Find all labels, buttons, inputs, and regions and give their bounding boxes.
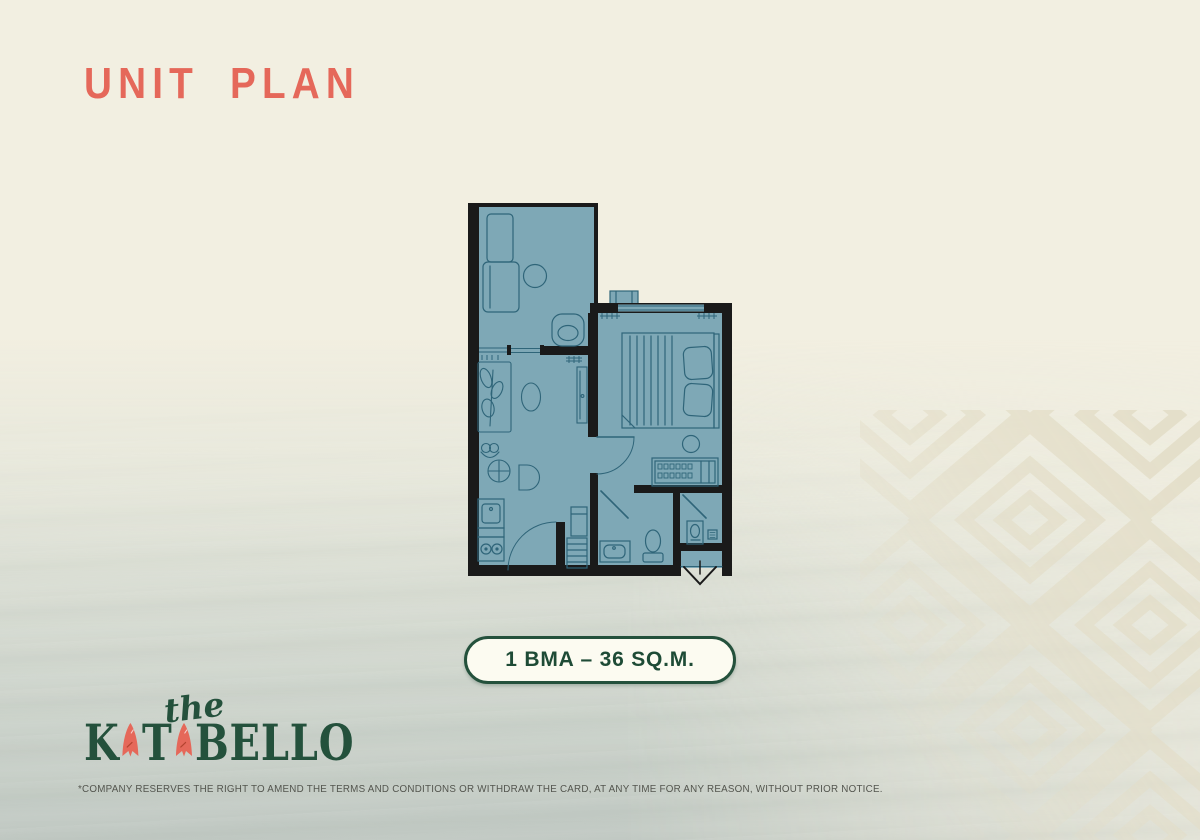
unit-floor-plan	[440, 180, 770, 600]
logo-letter-t: T	[142, 724, 173, 762]
balcony-ac-unit-icon	[610, 291, 638, 304]
unit-size-label: 1 BMA – 36 SQ.M.	[505, 648, 694, 672]
diamond-watermark-pattern	[860, 410, 1200, 840]
logo-sail-a-icon	[173, 722, 194, 762]
page-title: UNIT PLAN	[84, 62, 360, 106]
katabello-logo: the K T BELLO	[84, 692, 324, 778]
unit-size-badge: 1 BMA – 36 SQ.M.	[464, 636, 736, 684]
logo-wordmark: K T BELLO	[84, 722, 354, 762]
bedroom-window	[618, 305, 704, 312]
logo-letters-bello: BELLO	[195, 724, 354, 762]
logo-sail-a-icon	[120, 722, 141, 762]
brochure-page: UNIT PLAN	[0, 0, 1200, 840]
logo-letter-k: K	[84, 724, 120, 762]
floor-areas	[468, 203, 732, 576]
disclaimer-text: *COMPANY RESERVES THE RIGHT TO AMEND THE…	[78, 784, 883, 795]
